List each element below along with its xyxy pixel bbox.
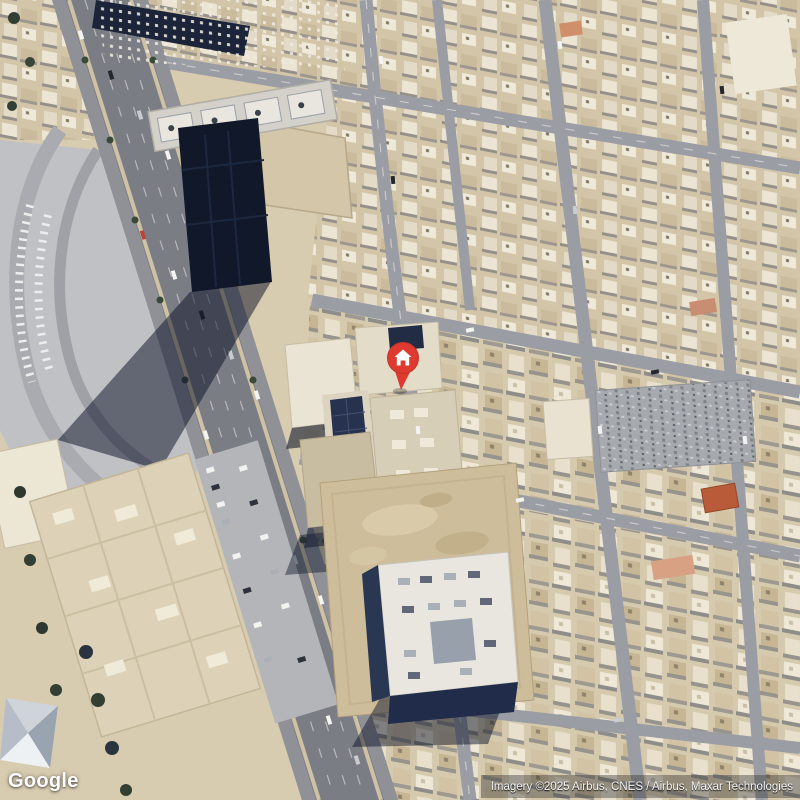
google-logo[interactable]: Google bbox=[8, 770, 79, 793]
map-attribution: Imagery ©2025 Airbus, CNES / Airbus, Max… bbox=[481, 775, 800, 798]
building-under-construction bbox=[352, 552, 518, 747]
red-roof-building bbox=[701, 483, 739, 513]
vacant-lot bbox=[258, 122, 352, 218]
satellite-imagery bbox=[0, 0, 800, 800]
attribution-text: Imagery ©2025 Airbus, CNES / Airbus, Max… bbox=[491, 781, 793, 793]
map-viewport[interactable]: Google Imagery ©2025 Airbus, CNES / Airb… bbox=[0, 0, 800, 800]
pyramid-building bbox=[0, 698, 58, 768]
construction-site bbox=[320, 463, 534, 747]
